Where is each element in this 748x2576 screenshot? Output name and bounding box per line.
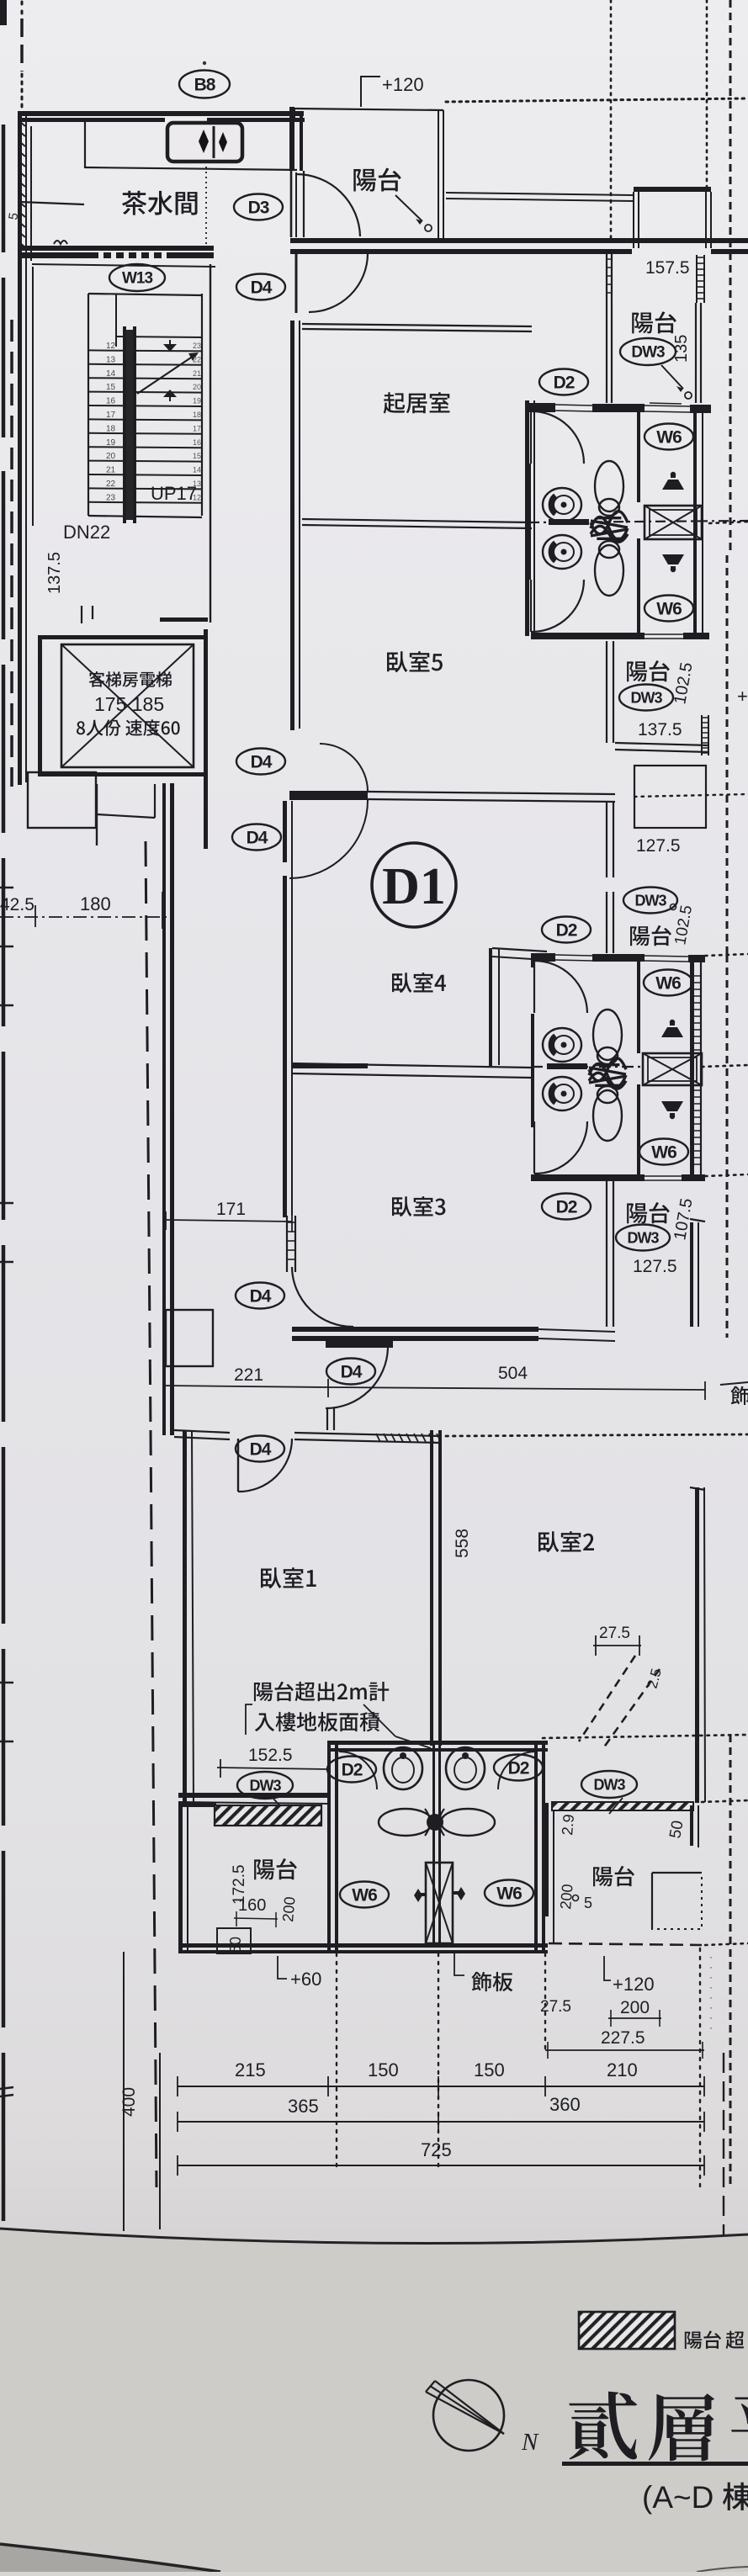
svg-text:160: 160 — [238, 1896, 266, 1915]
svg-text:UP17: UP17 — [151, 483, 197, 504]
svg-text:D2: D2 — [556, 1197, 577, 1216]
svg-text:DW3: DW3 — [594, 1776, 626, 1793]
svg-text:DW3: DW3 — [628, 1229, 660, 1246]
svg-text:20: 20 — [106, 452, 116, 461]
svg-text:15: 15 — [106, 383, 116, 392]
svg-text:17: 17 — [193, 424, 201, 432]
svg-text:18: 18 — [106, 424, 116, 433]
svg-text:365: 365 — [288, 2096, 319, 2117]
svg-text:D4: D4 — [251, 278, 273, 297]
svg-text:152.5: 152.5 — [248, 1746, 293, 1765]
svg-text:14: 14 — [193, 466, 201, 474]
svg-text:22: 22 — [106, 480, 116, 489]
svg-text:23: 23 — [193, 342, 201, 350]
svg-text:+60: +60 — [290, 1969, 321, 1990]
svg-text:D1: D1 — [382, 858, 446, 915]
svg-text:137.5: 137.5 — [638, 720, 682, 739]
svg-text:42.5: 42.5 — [0, 895, 34, 914]
svg-text:200: 200 — [279, 1896, 299, 1923]
svg-text:D2: D2 — [556, 920, 577, 940]
svg-text:D4: D4 — [250, 1439, 272, 1459]
svg-text:157.5: 157.5 — [645, 258, 690, 278]
svg-text:504: 504 — [498, 1364, 528, 1383]
svg-text:13: 13 — [106, 355, 116, 364]
svg-text:D2: D2 — [342, 1760, 363, 1779]
svg-text:D2: D2 — [554, 373, 575, 392]
svg-text:23: 23 — [106, 493, 116, 502]
svg-text:21: 21 — [106, 466, 116, 475]
svg-text:221: 221 — [234, 1365, 263, 1385]
svg-text:14: 14 — [106, 369, 116, 379]
svg-text:W6: W6 — [655, 973, 681, 993]
svg-text:15: 15 — [193, 452, 201, 460]
svg-text:725: 725 — [421, 2139, 452, 2160]
svg-text:227.5: 227.5 — [601, 2028, 645, 2048]
svg-text:210: 210 — [607, 2059, 638, 2080]
svg-text:22: 22 — [193, 355, 201, 363]
svg-text:W6: W6 — [352, 1885, 377, 1905]
svg-text:W6: W6 — [651, 1142, 676, 1162]
svg-text:171: 171 — [216, 1200, 246, 1219]
svg-text:W13: W13 — [122, 270, 153, 288]
svg-text:19: 19 — [106, 438, 116, 448]
svg-text:DW3: DW3 — [631, 344, 665, 362]
svg-text:+120: +120 — [382, 74, 424, 95]
svg-text:·: · — [709, 2022, 713, 2033]
svg-text:50: 50 — [666, 1819, 687, 1839]
svg-text:DW3: DW3 — [635, 892, 667, 909]
svg-text:27.5: 27.5 — [599, 1625, 630, 1642]
svg-text:DW3: DW3 — [250, 1777, 282, 1794]
svg-text:DW3: DW3 — [631, 689, 663, 706]
svg-text:5: 5 — [584, 1895, 592, 1911]
svg-text:12: 12 — [106, 342, 116, 351]
svg-text:16: 16 — [106, 397, 116, 406]
svg-text:21: 21 — [193, 369, 201, 378]
svg-text:19: 19 — [193, 397, 201, 405]
svg-text:D4: D4 — [250, 1286, 272, 1306]
svg-text:360: 360 — [549, 2094, 581, 2115]
svg-text:137.5: 137.5 — [45, 552, 64, 594]
svg-text:150: 150 — [474, 2059, 505, 2080]
svg-text:+: + — [737, 686, 748, 707]
svg-text:20: 20 — [193, 383, 201, 391]
svg-text:13: 13 — [193, 480, 201, 488]
svg-text:215: 215 — [235, 2059, 266, 2080]
svg-text:127.5: 127.5 — [633, 1257, 677, 1276]
svg-text:DN22: DN22 — [63, 522, 110, 543]
svg-text:135: 135 — [672, 335, 691, 363]
svg-text:127.5: 127.5 — [636, 836, 681, 856]
svg-text:+120: +120 — [613, 1974, 655, 1995]
svg-text:D4: D4 — [251, 752, 273, 771]
svg-text:400: 400 — [119, 2087, 139, 2117]
svg-text:2.9: 2.9 — [559, 1814, 577, 1837]
svg-text:180: 180 — [80, 893, 111, 914]
svg-text:D4: D4 — [247, 828, 268, 847]
svg-text:18: 18 — [193, 411, 201, 419]
svg-text:W6: W6 — [656, 599, 682, 618]
svg-text:150: 150 — [368, 2059, 399, 2080]
svg-text:50: 50 — [227, 1937, 244, 1953]
svg-text:200: 200 — [620, 1998, 650, 2017]
svg-text:B8: B8 — [194, 75, 216, 94]
svg-text:D4: D4 — [341, 1362, 363, 1381]
svg-text:W6: W6 — [656, 427, 682, 447]
svg-text:175 185: 175 185 — [94, 693, 164, 715]
svg-text:558: 558 — [453, 1529, 472, 1558]
svg-text:16: 16 — [193, 438, 201, 447]
svg-text:(A~D: (A~D — [642, 2480, 714, 2515]
svg-text:D3: D3 — [248, 198, 269, 217]
svg-text:17: 17 — [106, 411, 116, 420]
svg-text:N: N — [521, 2429, 539, 2456]
svg-text:W6: W6 — [496, 1884, 522, 1903]
svg-text:12: 12 — [193, 493, 201, 501]
